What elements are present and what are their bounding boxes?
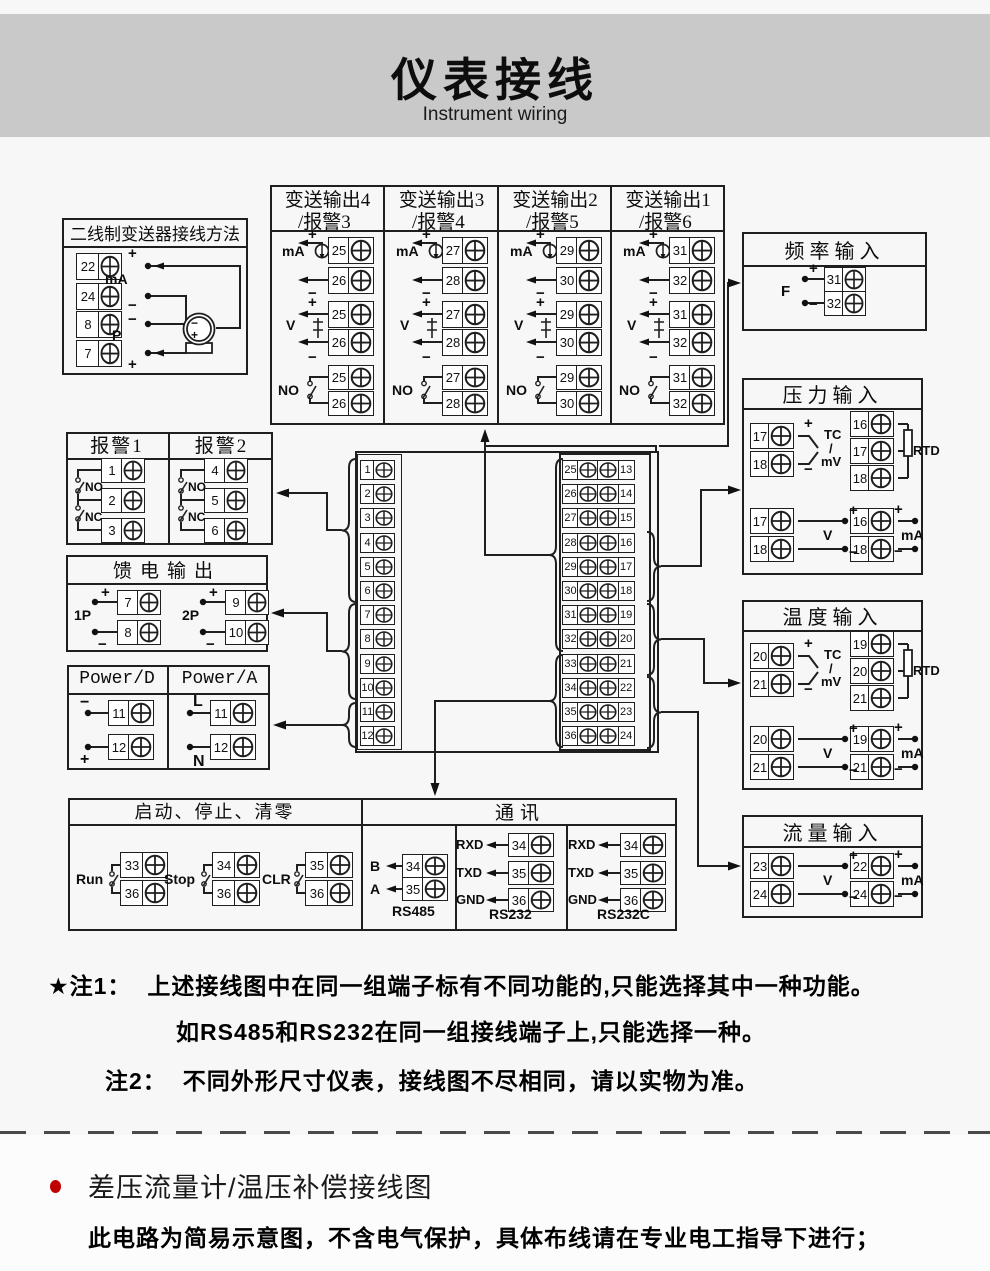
screw-icon [462, 267, 488, 294]
terminal-number: 17 [750, 423, 770, 449]
screw-icon [576, 267, 602, 294]
terminal-number: 28 [442, 267, 464, 294]
strip-terminal-25-13: 2513 [562, 460, 635, 480]
terminal-number: 12 [108, 734, 130, 760]
terminal-number: 8 [76, 311, 100, 338]
label-ma: mA [510, 244, 533, 258]
sign-minus: − [809, 297, 818, 312]
arrow-icon [276, 489, 289, 498]
screw-icon [577, 460, 599, 480]
title-line: 变送输出3 [399, 190, 485, 211]
screw-icon [597, 629, 619, 649]
terminal-number: 11 [210, 700, 232, 726]
note-2: 注2：不同外形尺寸仪表，接线图不尽相同，请以实物为准。 [105, 1062, 759, 1096]
terminal-number: 25 [328, 365, 350, 390]
screw-icon [768, 671, 794, 697]
label-v: V [400, 318, 409, 332]
divider [68, 824, 677, 826]
screw-icon [137, 620, 161, 645]
terminal-1: 1 [101, 458, 145, 483]
terminal-number: 13 [618, 460, 635, 480]
label-no: NO [85, 481, 103, 493]
sign-plus: + [308, 227, 317, 242]
strip-terminal-4: 4 [360, 533, 395, 553]
screw-icon [868, 508, 894, 534]
screw-icon [373, 484, 395, 504]
label-rxd: RXD [456, 838, 483, 851]
terminal-number: 21 [750, 754, 770, 780]
terminal-number: 12 [210, 734, 232, 760]
screw-icon [689, 329, 715, 356]
screw-icon [245, 620, 269, 645]
terminal-31: 31 [669, 365, 715, 390]
screw-icon [422, 854, 448, 878]
screw-icon [121, 518, 145, 543]
terminal-number: 18 [850, 465, 870, 491]
terminal-number: 27 [442, 237, 464, 264]
label-no: NO [278, 383, 299, 397]
sign-plus: + [849, 721, 858, 736]
header-band: 仪表接线 Instrument wiring [0, 14, 990, 137]
sign-minus: − [894, 889, 903, 904]
terminal-17: 17 [750, 423, 794, 449]
label-v: V [514, 318, 523, 332]
sign-plus: + [80, 752, 89, 768]
strip-terminal-30-18: 3018 [562, 581, 635, 601]
terminal-number: 34 [620, 833, 642, 857]
strip-terminal-28-16: 2816 [562, 533, 635, 553]
terminal-number: 14 [618, 484, 635, 504]
label-gnd: GND [568, 893, 597, 906]
screw-icon [597, 581, 619, 601]
terminal-10: 10 [225, 620, 269, 645]
screw-icon [689, 237, 715, 264]
terminal-17: 17 [850, 438, 894, 464]
terminal-number: 28 [442, 329, 464, 356]
sign-plus: + [101, 585, 110, 600]
title-line: /报警3 [272, 212, 383, 234]
screw-icon [348, 365, 374, 390]
strip-terminal-31-19: 3119 [562, 605, 635, 625]
sign-plus: + [809, 261, 818, 276]
screw-icon [373, 581, 395, 601]
terminal-number: 6 [204, 518, 226, 543]
terminal-number: 19 [618, 605, 635, 625]
title-line: 变送输出4 [285, 190, 371, 211]
terminal-9: 9 [225, 590, 269, 615]
terminal-20: 20 [750, 726, 794, 752]
screw-icon [577, 605, 599, 625]
strip-terminal-1: 1 [360, 460, 395, 480]
screw-icon [576, 391, 602, 416]
strip-terminal-35-23: 3523 [562, 702, 635, 722]
note-2-label: 注2： [105, 1068, 167, 1094]
divider [610, 185, 612, 425]
note-1-line-1: ★注1：上述接线图中在同一组端子标有不同功能的,只能选择其中一种功能。 [48, 967, 875, 1001]
screw-icon [768, 423, 794, 449]
terminal-31: 31 [824, 267, 866, 292]
terminal-24: 24 [750, 881, 794, 907]
terminal-number: 25 [328, 237, 350, 264]
screw-icon [576, 329, 602, 356]
terminal-number: 35 [508, 861, 530, 885]
sign-plus: + [849, 503, 858, 518]
terminal-number: 18 [618, 581, 635, 601]
terminal-4: 4 [204, 458, 248, 483]
label-no: NO [188, 481, 206, 493]
screw-icon [373, 654, 395, 674]
screw-icon [348, 301, 374, 328]
runstop-title: 启动、停止、清零 [68, 799, 361, 823]
arrow-icon [481, 429, 490, 442]
screw-icon [768, 754, 794, 780]
arrow-icon [728, 279, 741, 288]
screw-icon [462, 237, 488, 264]
sign-plus: + [849, 848, 858, 863]
strip-terminal-27-15: 2715 [562, 508, 635, 528]
terminal-2: 2 [101, 488, 145, 513]
screw-icon [868, 754, 894, 780]
sign-minus: − [849, 545, 858, 560]
terminal-36: 36 [305, 880, 353, 906]
terminal-28: 28 [442, 391, 488, 416]
terminal-25: 25 [328, 301, 374, 328]
terminal-7: 7 [76, 340, 122, 367]
terminal-number: 20 [750, 643, 770, 669]
terminal-number: 32 [669, 391, 691, 416]
divider [383, 185, 385, 425]
terminal-5: 5 [204, 488, 248, 513]
title-line: 变送输出2 [512, 190, 598, 211]
strip-terminal-7: 7 [360, 605, 395, 625]
title-line: /报警5 [500, 212, 610, 234]
screw-icon [577, 654, 599, 674]
terminal-23: 23 [750, 853, 794, 879]
label-ma: mA [901, 528, 924, 542]
screw-icon [597, 726, 619, 746]
label-tc: TC [824, 648, 841, 661]
sign-minus: − [849, 763, 858, 778]
terminal-35: 35 [620, 861, 666, 885]
screw-icon [528, 888, 554, 912]
label-ma: mA [623, 244, 646, 258]
terminal-number: 31 [669, 237, 691, 264]
screw-icon [224, 518, 248, 543]
screw-icon [640, 833, 666, 857]
screw-icon [868, 465, 894, 491]
label-v: V [286, 318, 295, 332]
screw-icon [768, 853, 794, 879]
terminal-28: 28 [442, 267, 488, 294]
screw-icon [768, 536, 794, 562]
terminal-28: 28 [442, 329, 488, 356]
terminal-27: 27 [442, 365, 488, 390]
screw-icon [348, 237, 374, 264]
screw-icon [576, 301, 602, 328]
terminal-32: 32 [824, 291, 866, 316]
transmit-col-title: 变送输出4/报警3 [272, 188, 383, 234]
label-v: V [823, 528, 832, 542]
terminal-number: 35 [402, 877, 424, 901]
screw-icon [576, 237, 602, 264]
screw-icon [373, 508, 395, 528]
screw-icon [597, 702, 619, 722]
terminal-number: 20 [750, 726, 770, 752]
strip-terminal-2: 2 [360, 484, 395, 504]
terminal-27: 27 [442, 237, 488, 264]
screw-icon [528, 861, 554, 885]
screw-icon [868, 726, 894, 752]
screw-icon [689, 391, 715, 416]
screw-icon [640, 861, 666, 885]
label-clr: CLR [262, 872, 291, 886]
terminal-number: 34 [212, 852, 236, 878]
screw-icon [327, 880, 353, 906]
screw-icon [768, 726, 794, 752]
screw-icon [868, 685, 894, 711]
screw-icon [373, 678, 395, 698]
terminal-number: 24 [750, 881, 770, 907]
screw-icon [842, 291, 866, 316]
label-stop: Stop [164, 872, 195, 886]
label-n: N [193, 754, 205, 770]
terminal-32: 32 [669, 267, 715, 294]
screw-icon [128, 700, 154, 726]
arrow-icon [271, 609, 284, 618]
terminal-29: 29 [556, 237, 602, 264]
screw-icon [689, 365, 715, 390]
terminal-number: 9 [225, 590, 247, 615]
strip-terminal-11: 11 [360, 702, 395, 722]
strip-terminal-5: 5 [360, 557, 395, 577]
sign-plus: + [536, 227, 545, 242]
screw-icon [230, 734, 256, 760]
terminal-6: 6 [204, 518, 248, 543]
label-v: V [823, 873, 832, 887]
label-mv: mV [821, 675, 841, 688]
sign-minus: − [206, 637, 215, 652]
wire [287, 493, 342, 530]
wire [661, 490, 730, 566]
terminal-25: 25 [328, 365, 374, 390]
screw-icon [868, 438, 894, 464]
terminal-number: 17 [750, 508, 770, 534]
divider [497, 185, 499, 425]
screw-icon [98, 340, 122, 367]
screw-icon [230, 700, 256, 726]
screw-icon [868, 881, 894, 907]
terminal-number: 23 [750, 853, 770, 879]
terminal-number: 27 [442, 365, 464, 390]
screw-icon [597, 533, 619, 553]
strip-terminal-6: 6 [360, 581, 395, 601]
terminal-number: 31 [824, 267, 844, 292]
sign-plus: + [894, 720, 903, 735]
terminal-21: 21 [750, 671, 794, 697]
terminal-number: 35 [620, 861, 642, 885]
screw-icon [577, 557, 599, 577]
terminal-number: 16 [850, 411, 870, 437]
strip-terminal-36-24: 3624 [562, 726, 635, 746]
label-2p: 2P [182, 608, 199, 622]
terminal-number: 33 [120, 852, 144, 878]
terminal-30: 30 [556, 329, 602, 356]
screw-icon [597, 654, 619, 674]
terminal-number: 2 [101, 488, 123, 513]
label-b: B [370, 859, 380, 873]
sign-minus: − [804, 462, 813, 477]
terminal-34: 34 [508, 833, 554, 857]
screw-icon [597, 605, 619, 625]
alarm2-title: 报警2 [170, 432, 273, 457]
sign-minus: − [422, 350, 431, 365]
divider [742, 630, 923, 632]
terminal-18: 18 [750, 536, 794, 562]
label-mv: mV [821, 455, 841, 468]
footer-body: 此电路为简易示意图，不含电气保护，具体布线请在专业电工指导下进行； [88, 1219, 880, 1253]
strip-terminal-3: 3 [360, 508, 395, 528]
terminal-3: 3 [101, 518, 145, 543]
footer-heading: 差压流量计/温压补偿接线图 [88, 1166, 433, 1205]
sign-minus: − [894, 544, 903, 559]
terminal-number: 32 [669, 329, 691, 356]
note-1-line-2: 如RS485和RS232在同一组接线端子上,只能选择一种。 [176, 1013, 766, 1047]
screw-icon [768, 451, 794, 477]
sign-plus: + [128, 246, 137, 261]
terminal-27: 27 [442, 301, 488, 328]
label-ma: mA [901, 873, 924, 887]
strip-terminal-10: 10 [360, 678, 395, 698]
terminal-35: 35 [508, 861, 554, 885]
terminal-number: 29 [556, 365, 578, 390]
terminal-7: 7 [117, 590, 161, 615]
terminal-34: 34 [620, 833, 666, 857]
screw-icon [245, 590, 269, 615]
label-p: P [112, 328, 121, 342]
screw-icon [234, 852, 260, 878]
terminal-18: 18 [850, 465, 894, 491]
terminal-number: 35 [305, 852, 329, 878]
page-subtitle: Instrument wiring [0, 104, 990, 126]
terminal-number: 11 [108, 700, 130, 726]
temperature-title: 温度输入 [742, 602, 923, 629]
sign-minus: − [894, 762, 903, 777]
terminal-18: 18 [750, 451, 794, 477]
divider [62, 246, 248, 248]
terminal-26: 26 [328, 391, 374, 416]
screw-icon [577, 702, 599, 722]
wire [282, 613, 342, 651]
terminal-20: 20 [750, 643, 794, 669]
comm-title: 通讯 [363, 799, 677, 823]
label-1p: 1P [74, 608, 91, 622]
label-rs232: RS232 [489, 907, 532, 921]
terminal-number: 1 [101, 458, 123, 483]
terminal-number: 36 [305, 880, 329, 906]
terminal-32: 32 [669, 329, 715, 356]
label-no: NO [506, 383, 527, 397]
screw-icon [689, 267, 715, 294]
sign-plus: + [422, 295, 431, 310]
sign-minus: − [804, 682, 813, 697]
terminal-number: 16 [618, 533, 635, 553]
screw-icon [597, 484, 619, 504]
wire [342, 459, 356, 602]
terminal-number: 32 [824, 291, 844, 316]
arrow-icon [431, 783, 440, 796]
screw-icon [868, 658, 894, 684]
label-l: L [193, 694, 203, 710]
terminal-36: 36 [212, 880, 260, 906]
terminal-number: 15 [618, 508, 635, 528]
terminal-number: 27 [442, 301, 464, 328]
terminal-number: 8 [117, 620, 139, 645]
label-rtd: RTD [913, 444, 940, 457]
terminal-number: 19 [850, 631, 870, 657]
sign-plus: + [422, 227, 431, 242]
terminal-21: 21 [750, 754, 794, 780]
terminal-number: 26 [328, 329, 350, 356]
arrow-icon [728, 862, 741, 871]
strip-terminal-26-14: 2614 [562, 484, 635, 504]
note-2-text: 不同外形尺寸仪表，接线图不尽相同，请以实物为准。 [183, 1068, 759, 1094]
terminal-number: 30 [556, 391, 578, 416]
label-no: NO [392, 383, 413, 397]
sign-plus: + [894, 502, 903, 517]
screw-icon [842, 267, 866, 292]
terminal-12: 12 [108, 734, 154, 760]
title-line: /报警6 [613, 212, 723, 234]
terminal-number: 4 [204, 458, 226, 483]
terminal-number: 20 [618, 629, 635, 649]
screw-icon [577, 581, 599, 601]
terminal-number: 24 [618, 726, 635, 746]
terminal-number: 29 [556, 301, 578, 328]
sign-minus: − [98, 637, 107, 652]
terminal-12: 12 [210, 734, 256, 760]
sign-minus: − [849, 890, 858, 905]
note-1-label: ★注1： [48, 973, 131, 999]
screw-icon [327, 852, 353, 878]
sign-plus: + [804, 416, 813, 431]
flow-title: 流量输入 [742, 817, 923, 845]
terminal-35: 35 [402, 877, 448, 901]
screw-icon [577, 629, 599, 649]
screw-icon [224, 488, 248, 513]
alarm1-title: 报警1 [66, 432, 168, 457]
screw-icon [576, 365, 602, 390]
wire [661, 639, 730, 683]
terminal-number: 22 [76, 253, 100, 280]
terminal-number: 28 [442, 391, 464, 416]
feed-title: 馈电输出 [66, 556, 268, 582]
terminal-number: 36 [212, 880, 236, 906]
sign-minus: − [649, 350, 658, 365]
sign-plus: + [804, 636, 813, 651]
screw-icon [577, 726, 599, 746]
screw-icon [373, 557, 395, 577]
strip-terminal-8: 8 [360, 629, 395, 649]
screw-icon [868, 536, 894, 562]
label-tc: TC [824, 428, 841, 441]
strip-terminal-33-21: 3321 [562, 654, 635, 674]
screw-icon [348, 267, 374, 294]
terminal-number: 34 [402, 854, 424, 878]
screw-icon [597, 678, 619, 698]
terminal-number: 20 [850, 658, 870, 684]
terminal-11: 11 [108, 700, 154, 726]
sign-plus: + [128, 357, 137, 372]
